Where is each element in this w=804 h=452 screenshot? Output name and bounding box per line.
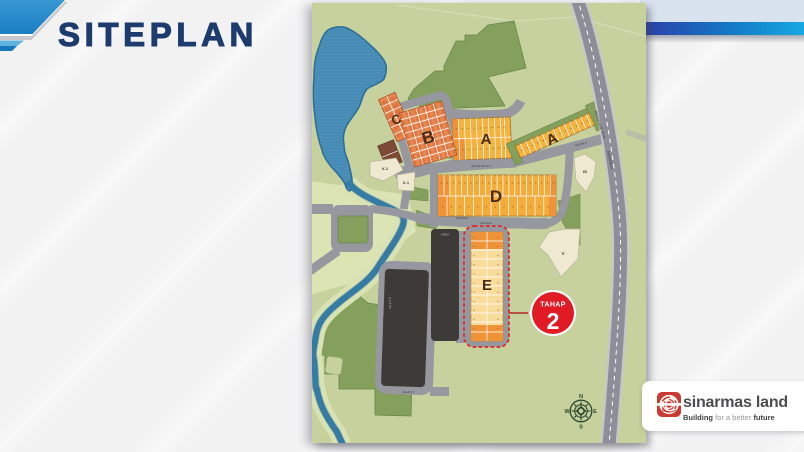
svg-text:K.1: K.1 — [403, 180, 410, 185]
svg-text:W: W — [564, 409, 570, 415]
svg-text:S 2.8 Ha: S 2.8 Ha — [388, 297, 392, 309]
svg-text:JALAN 5: JALAN 5 — [402, 390, 414, 394]
svg-text:sinarmas land: sinarmas land — [683, 394, 788, 411]
svg-text:2: 2 — [547, 308, 560, 334]
svg-text:BI: BI — [583, 169, 587, 174]
svg-text:V: V — [561, 251, 564, 256]
svg-text:JALAN D: JALAN D — [456, 216, 469, 220]
svg-text:A: A — [481, 131, 492, 148]
svg-text:JALAN RAYA 1: JALAN RAYA 1 — [471, 164, 492, 168]
svg-text:AREA: AREA — [441, 233, 449, 237]
svg-text:JALAN 4: JALAN 4 — [382, 317, 386, 329]
svg-text:D: D — [490, 187, 502, 206]
svg-text:JALAN E: JALAN E — [480, 221, 492, 225]
svg-text:Building for a better future: Building for a better future — [683, 413, 775, 422]
svg-text:E: E — [482, 277, 492, 294]
svg-text:K.2: K.2 — [382, 166, 389, 171]
svg-text:N: N — [579, 394, 583, 400]
svg-text:E: E — [593, 409, 597, 415]
svg-text:S: S — [579, 425, 583, 431]
